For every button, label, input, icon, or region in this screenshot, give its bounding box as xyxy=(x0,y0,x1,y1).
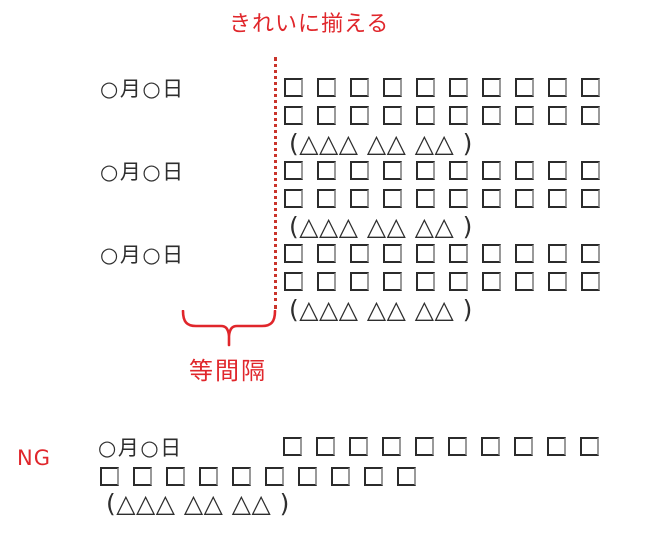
placeholder-square xyxy=(482,161,501,180)
placeholder-square xyxy=(383,78,402,97)
placeholder-square xyxy=(580,437,599,456)
square-row xyxy=(283,437,599,456)
caption-triangles: (△△△ △△ △△ ) xyxy=(289,214,473,239)
placeholder-square xyxy=(482,78,501,97)
placeholder-square xyxy=(416,189,435,208)
placeholder-square xyxy=(383,161,402,180)
placeholder-square xyxy=(514,437,533,456)
placeholder-square xyxy=(449,244,468,263)
caption-triangles: (△△△ △△ △△ ) xyxy=(289,297,473,322)
placeholder-square xyxy=(515,78,534,97)
placeholder-square xyxy=(383,244,402,263)
placeholder-square xyxy=(284,272,303,291)
square-row xyxy=(100,467,416,486)
spacing-annotation-label: 等間隔 xyxy=(189,358,267,384)
align-annotation-label: きれいに揃える xyxy=(229,13,389,37)
placeholder-square xyxy=(331,467,350,486)
placeholder-square xyxy=(382,437,401,456)
placeholder-square xyxy=(350,244,369,263)
placeholder-square xyxy=(133,467,152,486)
placeholder-square xyxy=(415,437,434,456)
placeholder-square xyxy=(284,78,303,97)
placeholder-square xyxy=(548,272,567,291)
caption-triangles: (△△△ △△ △△ ) xyxy=(106,491,290,516)
placeholder-square xyxy=(481,437,500,456)
diagram-canvas: きれいに揃える ○月○日 (△△△ △△ △△ ) ○月○日 (△△△ △△ △… xyxy=(0,0,649,550)
caption-triangles: (△△△ △△ △△ ) xyxy=(289,131,473,156)
square-row xyxy=(284,244,600,263)
square-row xyxy=(284,189,600,208)
placeholder-square xyxy=(284,161,303,180)
placeholder-square xyxy=(548,244,567,263)
placeholder-square xyxy=(581,161,600,180)
placeholder-square xyxy=(349,437,368,456)
placeholder-square xyxy=(317,189,336,208)
placeholder-square xyxy=(449,189,468,208)
curly-brace-icon xyxy=(180,310,278,348)
placeholder-square xyxy=(547,437,566,456)
placeholder-square xyxy=(100,467,119,486)
placeholder-square xyxy=(416,161,435,180)
placeholder-square xyxy=(515,106,534,125)
placeholder-square xyxy=(317,78,336,97)
placeholder-square xyxy=(317,244,336,263)
placeholder-square xyxy=(548,78,567,97)
placeholder-square xyxy=(482,189,501,208)
placeholder-square xyxy=(350,106,369,125)
placeholder-square xyxy=(416,106,435,125)
placeholder-square xyxy=(284,189,303,208)
placeholder-square xyxy=(383,106,402,125)
placeholder-square xyxy=(265,467,284,486)
placeholder-square xyxy=(316,437,335,456)
placeholder-square xyxy=(416,272,435,291)
square-row xyxy=(284,161,600,180)
placeholder-square xyxy=(448,437,467,456)
placeholder-square xyxy=(581,78,600,97)
placeholder-square xyxy=(548,161,567,180)
placeholder-square xyxy=(283,437,302,456)
placeholder-square xyxy=(364,467,383,486)
placeholder-square xyxy=(350,272,369,291)
date-label: ○月○日 xyxy=(100,78,185,101)
placeholder-square xyxy=(397,467,416,486)
placeholder-square xyxy=(166,467,185,486)
placeholder-square xyxy=(416,244,435,263)
placeholder-square xyxy=(482,244,501,263)
placeholder-square xyxy=(350,189,369,208)
placeholder-square xyxy=(416,78,435,97)
placeholder-square xyxy=(482,106,501,125)
date-label: ○月○日 xyxy=(100,244,185,267)
placeholder-square xyxy=(350,78,369,97)
placeholder-square xyxy=(581,272,600,291)
placeholder-square xyxy=(581,106,600,125)
placeholder-square xyxy=(199,467,218,486)
placeholder-square xyxy=(515,161,534,180)
placeholder-square xyxy=(581,189,600,208)
placeholder-square xyxy=(515,272,534,291)
placeholder-square xyxy=(383,189,402,208)
placeholder-square xyxy=(449,78,468,97)
square-row xyxy=(284,78,600,97)
placeholder-square xyxy=(317,161,336,180)
placeholder-square xyxy=(284,106,303,125)
alignment-guide-dotted-line xyxy=(274,57,277,309)
date-label: ○月○日 xyxy=(98,437,183,460)
placeholder-square xyxy=(515,189,534,208)
placeholder-square xyxy=(317,106,336,125)
placeholder-square xyxy=(449,161,468,180)
placeholder-square xyxy=(482,272,501,291)
square-row xyxy=(284,106,600,125)
placeholder-square xyxy=(232,467,251,486)
placeholder-square xyxy=(548,106,567,125)
placeholder-square xyxy=(284,244,303,263)
placeholder-square xyxy=(317,272,336,291)
square-row xyxy=(284,272,600,291)
placeholder-square xyxy=(581,244,600,263)
placeholder-square xyxy=(383,272,402,291)
placeholder-square xyxy=(515,244,534,263)
date-label: ○月○日 xyxy=(100,161,185,184)
placeholder-square xyxy=(548,189,567,208)
placeholder-square xyxy=(449,272,468,291)
placeholder-square xyxy=(350,161,369,180)
placeholder-square xyxy=(298,467,317,486)
placeholder-square xyxy=(449,106,468,125)
ng-label: NG xyxy=(17,447,51,470)
